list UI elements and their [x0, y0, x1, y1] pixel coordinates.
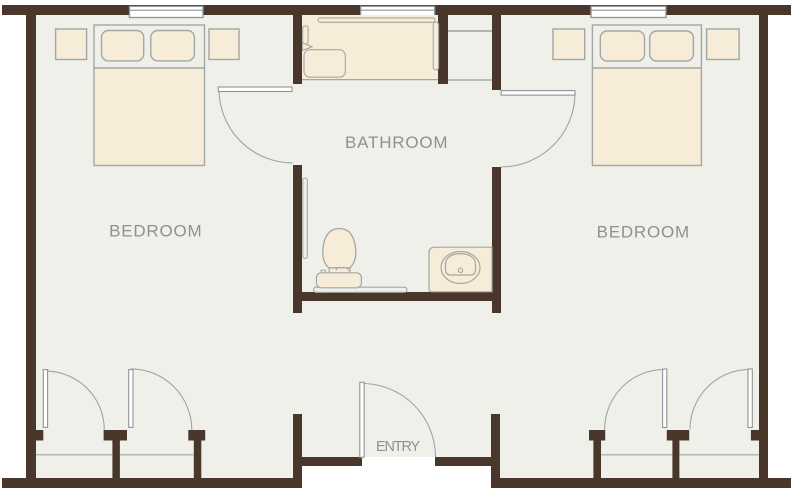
- svg-text:ENTRY: ENTRY: [376, 439, 421, 455]
- svg-text:BEDROOM: BEDROOM: [597, 222, 690, 241]
- svg-text:BATHROOM: BATHROOM: [345, 133, 448, 152]
- svg-text:BEDROOM: BEDROOM: [109, 222, 202, 241]
